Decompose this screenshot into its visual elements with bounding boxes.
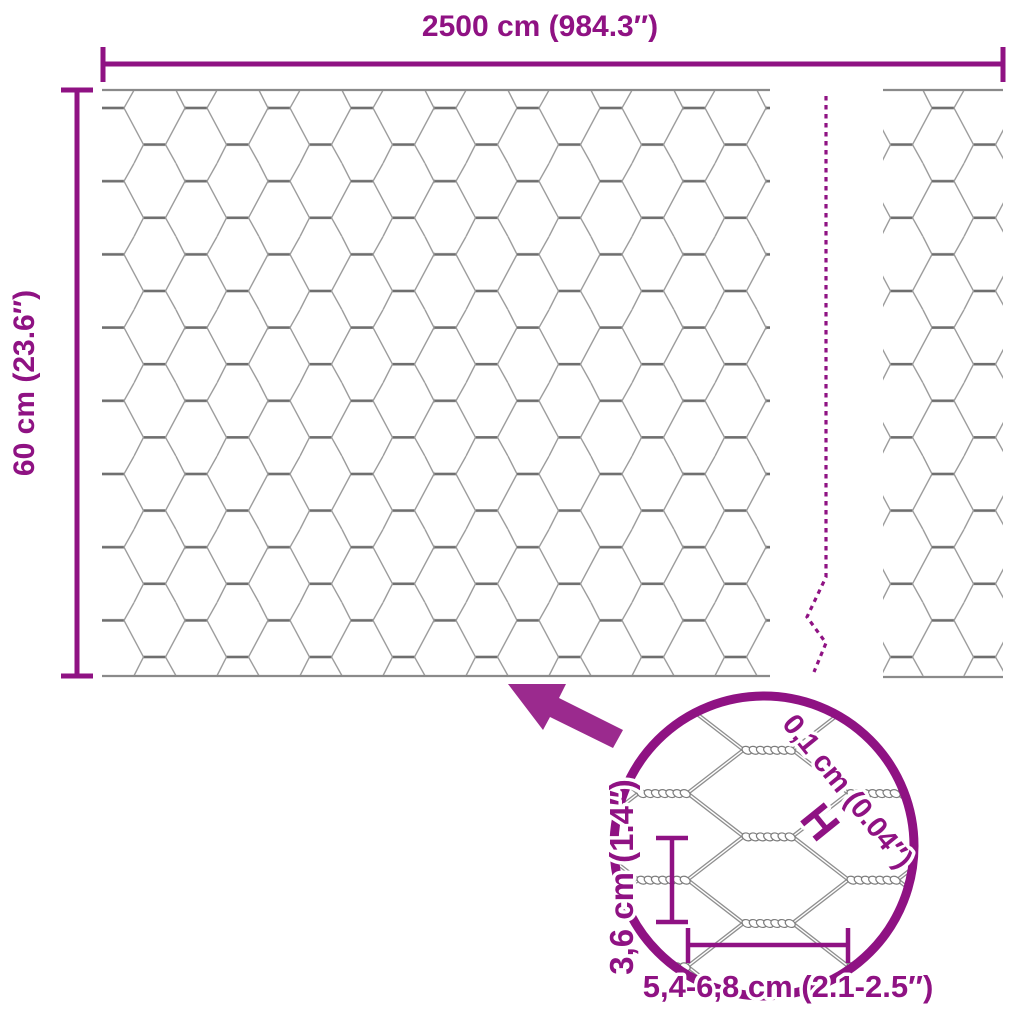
height-dimension-label: 60 cm (23.6″) — [8, 290, 41, 476]
panel-break-dashed-line — [807, 96, 826, 672]
mesh-height-label: 3,6 cm (1.4″) — [603, 779, 640, 975]
height-dimension: 60 cm (23.6″) — [8, 90, 93, 676]
width-dimension: 2500 cm (984.3″) — [103, 10, 1003, 82]
mesh-pattern-right — [883, 90, 1003, 677]
width-dimension-label: 2500 cm (984.3″) — [422, 10, 658, 43]
zoom-arrow-icon — [508, 684, 623, 748]
mesh-pattern-main — [102, 90, 770, 677]
mesh-width-label: 5,4-6,8 cm (2.1-2.5″) — [643, 969, 934, 1004]
diagram-canvas: 2500 cm (984.3″) 60 cm (23.6″) 3,6 cm (1… — [0, 0, 1024, 1024]
product-dimension-diagram: 2500 cm (984.3″) 60 cm (23.6″) 3,6 cm (1… — [0, 0, 1024, 1024]
zoom-circle: 3,6 cm (1.4″) 5,4-6,8 cm (2.1-2.5″) 0,1 … — [372, 696, 1024, 1012]
mesh-panel-main — [102, 90, 770, 677]
mesh-panel-right — [883, 90, 1003, 677]
